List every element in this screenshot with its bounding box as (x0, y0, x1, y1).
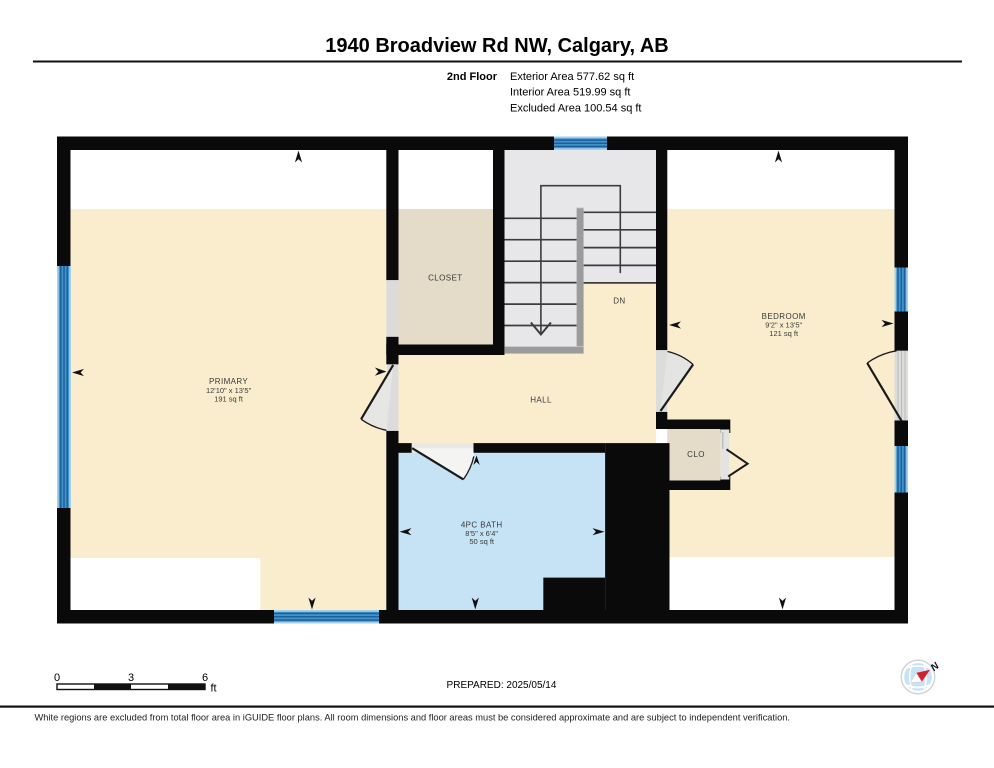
svg-text:White regions are excluded fro: White regions are excluded from total fl… (35, 713, 791, 723)
svg-text:121 sq ft: 121 sq ft (769, 329, 799, 338)
svg-text:HALL: HALL (530, 396, 552, 405)
svg-text:0: 0 (54, 672, 60, 684)
svg-text:CLOSET: CLOSET (428, 274, 462, 283)
svg-text:2nd Floor: 2nd Floor (447, 71, 498, 83)
svg-text:DN: DN (613, 297, 625, 306)
svg-text:PREPARED: 2025/05/14: PREPARED: 2025/05/14 (447, 680, 557, 691)
svg-text:191 sq ft: 191 sq ft (214, 394, 244, 403)
svg-text:Exterior Area 577.62 sq ft: Exterior Area 577.62 sq ft (510, 71, 634, 83)
svg-text:CLO: CLO (687, 450, 705, 459)
svg-text:PRIMARY: PRIMARY (209, 377, 248, 386)
svg-text:6: 6 (202, 672, 208, 684)
svg-text:3: 3 (128, 672, 134, 684)
svg-text:ft: ft (211, 683, 217, 695)
svg-text:50 sq ft: 50 sq ft (469, 537, 495, 546)
svg-text:1940 Broadview Rd NW, Calgary,: 1940 Broadview Rd NW, Calgary, AB (325, 35, 668, 57)
svg-text:Excluded Area 100.54 sq ft: Excluded Area 100.54 sq ft (510, 103, 641, 115)
svg-text:Interior Area 519.99 sq ft: Interior Area 519.99 sq ft (510, 87, 630, 99)
